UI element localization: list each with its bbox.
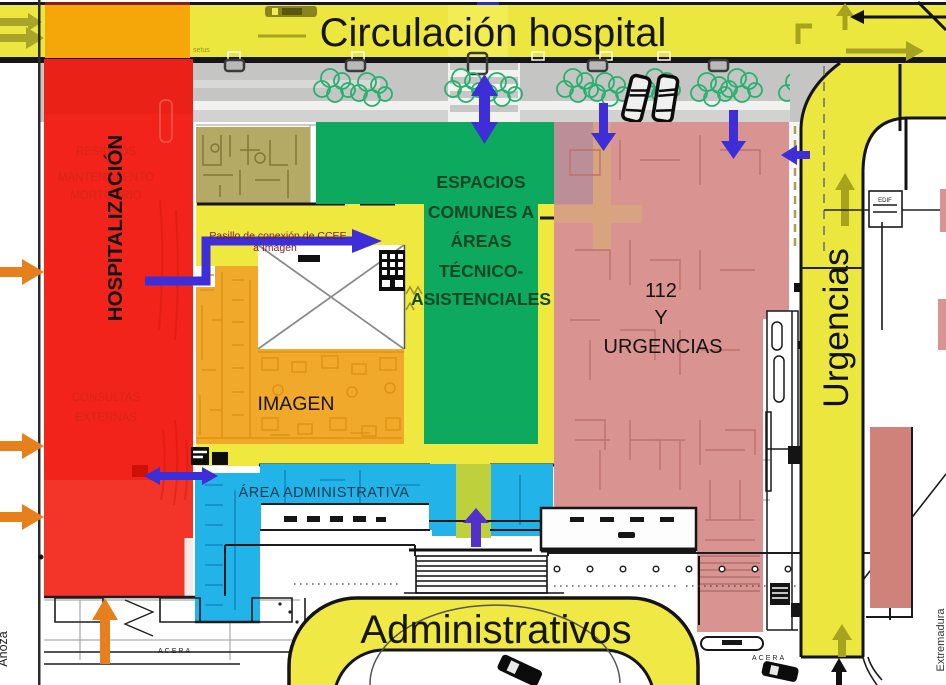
svg-text:ÁREA ADMINISTRATIVA: ÁREA ADMINISTRATIVA — [239, 484, 410, 501]
svg-text:HOSPITALIZACIÓN: HOSPITALIZACIÓN — [103, 135, 127, 321]
svg-text:setus: setus — [193, 47, 210, 54]
svg-text:TÉCNICO-: TÉCNICO- — [439, 260, 524, 281]
svg-text:ACERA: ACERA — [752, 655, 786, 662]
svg-text:Añoza: Añoza — [0, 631, 10, 666]
svg-text:a Imagen: a Imagen — [253, 242, 297, 254]
svg-text:EXTERNAS: EXTERNAS — [75, 412, 137, 424]
svg-text:Administrativos: Administrativos — [360, 608, 631, 652]
svg-text:Extremadura: Extremadura — [935, 608, 946, 672]
svg-text:Urgencias: Urgencias — [816, 248, 856, 408]
svg-text:EDIF: EDIF — [878, 198, 892, 204]
svg-text:URGENCIAS: URGENCIAS — [604, 336, 723, 358]
svg-text:112: 112 — [645, 280, 677, 302]
svg-text:ACERA: ACERA — [158, 648, 192, 655]
svg-text:ASISTENCIALES: ASISTENCIALES — [411, 289, 551, 309]
svg-text:ESPACIOS: ESPACIOS — [436, 172, 525, 192]
svg-text:Circulación hospital: Circulación hospital — [320, 11, 667, 55]
svg-text:IMAGEN: IMAGEN — [258, 393, 335, 415]
svg-text:Pasillo de conexión de CCEE: Pasillo de conexión de CCEE — [209, 230, 346, 242]
svg-text:ÁREAS: ÁREAS — [450, 230, 511, 251]
svg-text:Y: Y — [654, 307, 667, 329]
svg-text:COMUNES A: COMUNES A — [428, 202, 535, 222]
svg-text:CONSULTAS: CONSULTAS — [72, 392, 141, 404]
